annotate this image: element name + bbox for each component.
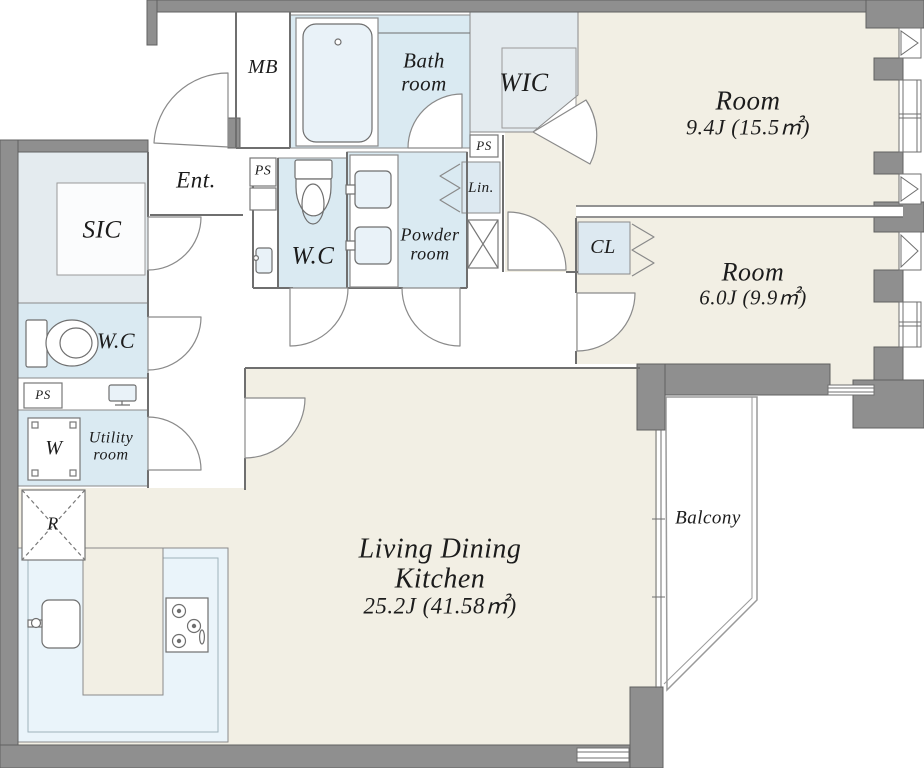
burner-dot [177, 639, 180, 642]
label-meter-box: MB [248, 57, 278, 79]
balcony-edge-inner [664, 397, 752, 684]
wall-top [147, 0, 905, 12]
label-refrigerator: R [47, 514, 59, 533]
utility-basin [109, 385, 136, 401]
vanity-faucet [346, 185, 355, 194]
label-room-6-0-area: 6.0J (9.9㎡) [699, 287, 807, 310]
label-bathroom-line2: room [401, 72, 447, 95]
label-bathroom-line1: Bath [401, 49, 447, 72]
wall-pilaster [874, 347, 903, 380]
washer-foot [32, 422, 38, 428]
label-ps-3: PS [35, 388, 50, 402]
toilet-tank [26, 320, 47, 367]
label-room-6-0: Room 6.0J (9.9㎡) [699, 259, 807, 310]
vanity-faucet [346, 241, 355, 250]
wall-ldk-se [630, 687, 663, 768]
basin-faucet [254, 256, 259, 261]
wall-west [0, 140, 18, 768]
floor-plan: MB Bath room WIC Room 9.4J (15.5㎡) PS PS… [0, 0, 924, 768]
label-entrance: Ent. [176, 169, 216, 194]
wall-porch-stub [147, 0, 157, 45]
label-wc-left: W.C [97, 329, 135, 353]
window [899, 80, 921, 152]
window-bay [874, 80, 900, 152]
vanity-sink [355, 227, 391, 264]
label-ps-1: PS [255, 163, 272, 178]
window [577, 748, 629, 762]
wall-pilaster [874, 270, 903, 302]
wall-mb [236, 12, 290, 148]
balcony-edge-outer [666, 397, 757, 690]
window-bay [874, 174, 900, 204]
window-bay [874, 302, 900, 347]
washer-foot [70, 470, 76, 476]
kitchen-sink [42, 600, 80, 648]
wc-left-door [148, 317, 201, 370]
washer-foot [32, 470, 38, 476]
label-powder-line2: room [401, 245, 460, 264]
label-ldk: Living Dining Kitchen 25.2J (41.58㎡) [359, 534, 522, 619]
label-powder-line1: Powder [401, 226, 460, 245]
entrance-door [154, 73, 228, 147]
burner-dot [192, 624, 195, 627]
wall-balcony-north [637, 364, 665, 430]
label-ldk-area: 25.2J (41.58㎡) [359, 595, 522, 620]
utility-door [148, 417, 201, 470]
label-utility-room: Utility room [89, 430, 133, 465]
sic-door [148, 217, 201, 270]
toilet-tank [295, 160, 332, 179]
wall-bottom [0, 745, 662, 768]
powder-room-door [402, 288, 460, 346]
label-room-9-4-name: Room [686, 87, 810, 116]
label-wc-center: W.C [292, 243, 335, 270]
label-room-9-4: Room 9.4J (15.5㎡) [686, 87, 810, 140]
window [899, 302, 921, 347]
label-utility-line1: Utility [89, 430, 133, 447]
wall-room6-south [640, 364, 830, 395]
label-room-9-4-area: 9.4J (15.5㎡) [686, 116, 810, 140]
label-utility-line2: room [89, 447, 133, 464]
wall-west-arm [0, 140, 148, 152]
corner-basin [256, 248, 272, 273]
washer-foot [70, 422, 76, 428]
duct-box [250, 188, 276, 210]
kitchen-faucet-knob [32, 619, 41, 628]
label-cl: CL [590, 237, 615, 259]
label-balcony: Balcony [675, 509, 741, 530]
wall-pilaster [874, 152, 903, 174]
balcony-outline [664, 397, 757, 690]
wall-pilaster [874, 58, 903, 80]
label-wic: WIC [499, 69, 548, 97]
label-ps-2: PS [476, 139, 491, 153]
vanity-sink [355, 171, 391, 208]
window-bay [874, 232, 900, 270]
label-washer: W [45, 438, 62, 460]
label-powder-room: Powder room [401, 226, 460, 265]
wc-center-door [290, 288, 348, 346]
label-sic: SIC [83, 217, 122, 244]
toilet-bowl [46, 320, 98, 366]
label-room-6-0-name: Room [699, 259, 807, 287]
label-ldk-line1: Living Dining [359, 534, 522, 564]
wall-mb-stub [228, 118, 240, 148]
wall-corner-ne [866, 0, 924, 28]
window [828, 385, 874, 395]
label-linen: Lin. [468, 180, 494, 196]
label-ldk-line2: Kitchen [359, 565, 522, 595]
tub-drain [335, 39, 341, 45]
burner-dot [177, 609, 180, 612]
wall-room-divider [576, 206, 903, 217]
label-bathroom: Bath room [401, 49, 447, 94]
window-bay [874, 28, 900, 58]
kitchen-aisle [83, 548, 163, 695]
